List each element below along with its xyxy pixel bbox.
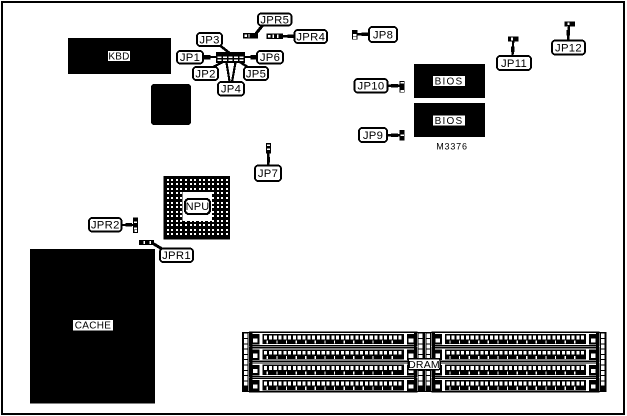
svg-text:BIOS: BIOS [435,116,464,127]
svg-text:NPU: NPU [186,201,210,213]
svg-text:JP9: JP9 [363,130,383,142]
svg-text:JP3: JP3 [199,34,219,46]
svg-text:M3376: M3376 [436,142,468,152]
svg-text:JP5: JP5 [246,68,266,80]
svg-text:JPR1: JPR1 [162,250,191,262]
svg-text:JPR4: JPR4 [296,31,325,43]
svg-text:JP4: JP4 [221,84,241,96]
svg-text:CACHE: CACHE [75,321,112,332]
svg-text:JP7: JP7 [258,168,278,180]
svg-text:BIOS: BIOS [435,76,464,87]
svg-text:JP10: JP10 [358,81,385,93]
svg-text:JPR2: JPR2 [91,220,120,232]
svg-text:JP8: JP8 [373,29,393,41]
svg-text:DRAM: DRAM [408,359,440,371]
svg-text:JP1: JP1 [180,52,200,64]
svg-text:JP6: JP6 [260,52,280,64]
svg-text:JPR5: JPR5 [260,14,289,26]
svg-text:KBD: KBD [108,51,129,62]
svg-text:JP12: JP12 [555,42,582,54]
svg-text:JP2: JP2 [195,68,215,80]
svg-text:JP11: JP11 [501,58,527,70]
